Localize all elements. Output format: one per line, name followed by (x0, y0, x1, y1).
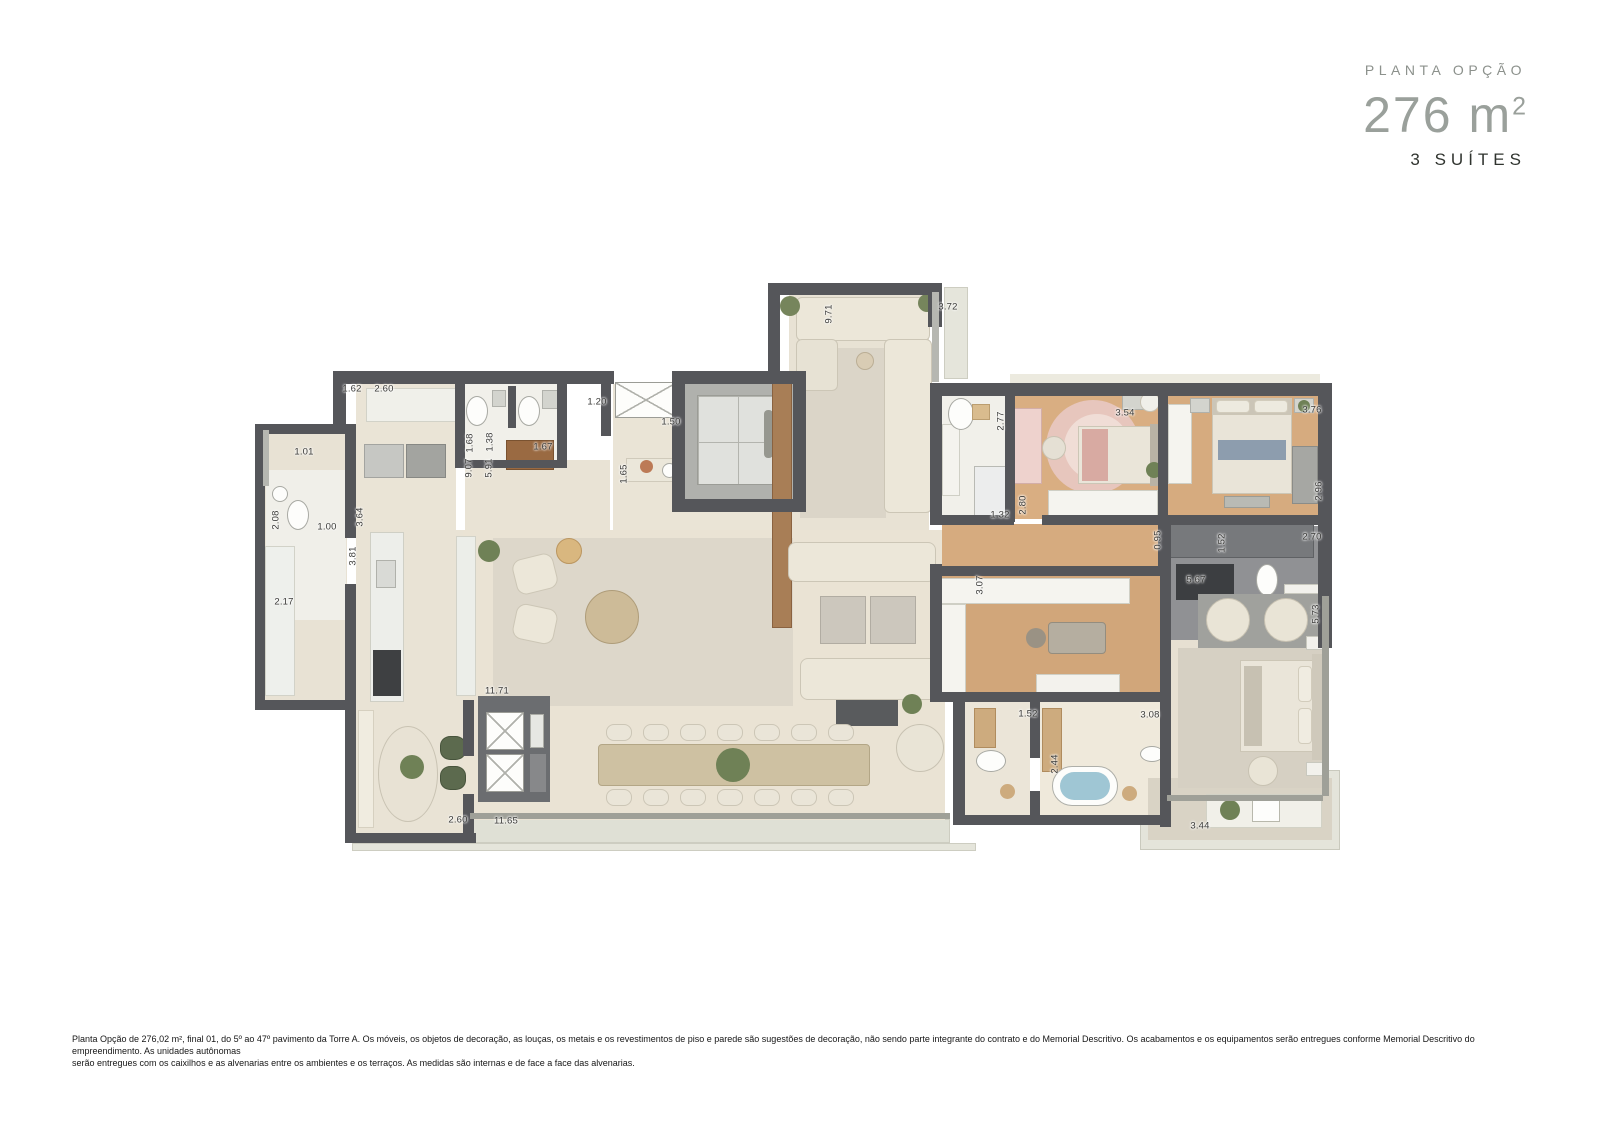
page: 1.622.601.012.081.003.643.812.171.681.38… (0, 0, 1600, 1125)
wall-segment (672, 371, 806, 384)
breakfast-plant (400, 755, 424, 779)
dining-chair-top (680, 724, 706, 741)
wc-his-toilet (976, 750, 1006, 772)
dressing-wardrobe (1170, 522, 1314, 558)
disclaimer-line-1: Planta Opção de 276,02 m², final 01, do … (72, 1034, 1475, 1056)
disclaimer: Planta Opção de 276,02 m², final 01, do … (72, 1033, 1544, 1069)
kitchen-sink (376, 560, 396, 588)
dining-chair-bottom (606, 789, 632, 806)
dining-chair-bottom (754, 789, 780, 806)
dimension-label: 3.64 (355, 507, 366, 526)
dining-chair-top (791, 724, 817, 741)
dimension-label: 2.70 (1302, 532, 1321, 543)
dining-chair-bottom (828, 789, 854, 806)
s3-pillow-1 (1216, 400, 1250, 413)
pouf (556, 538, 582, 564)
washer (406, 444, 446, 478)
dimension-label: 1.01 (294, 447, 313, 458)
wall-segment (345, 700, 356, 843)
dimension-label: 1.52 (1217, 533, 1228, 552)
wall-segment (463, 700, 474, 756)
dining-chair-top (643, 724, 669, 741)
dimension-label: 3.07 (975, 575, 986, 594)
wall-segment (345, 584, 356, 710)
dimension-label: 1.38 (485, 432, 496, 451)
breakfast-chair-2 (440, 766, 466, 790)
service-counter (265, 546, 295, 696)
island-box-1 (486, 712, 524, 750)
dressing-chair-2 (1264, 598, 1308, 642)
floor-corridor-suites (942, 524, 1160, 568)
service-sink (272, 486, 288, 502)
closet-wardrobe-left (940, 604, 966, 696)
plan-area: 276 m2 (1363, 90, 1526, 140)
wall-segment (1167, 795, 1323, 801)
wall-segment (455, 384, 465, 466)
dimension-label: 3.54 (1115, 408, 1134, 419)
dimension-label: 5.67 (1186, 575, 1205, 586)
dimension-label: 1.32 (990, 510, 1009, 521)
wall-segment (255, 700, 356, 710)
wall-segment (1042, 515, 1160, 525)
dining-chair-bottom (680, 789, 706, 806)
dimension-label: 11.71 (485, 686, 509, 697)
dimension-label: 1.20 (587, 397, 606, 408)
terrace-decor (1252, 800, 1280, 822)
closet-pouf (1026, 628, 1046, 648)
dimension-label: 11.65 (494, 816, 518, 827)
s3-bench (1224, 496, 1270, 508)
dryer (364, 444, 404, 478)
wc-toilet-1 (466, 396, 488, 426)
dimension-label: 1.65 (619, 464, 630, 483)
dining-chair-bottom (643, 789, 669, 806)
closet-wardrobe-top (940, 578, 1130, 604)
wall-segment (601, 384, 611, 436)
dimension-label: 9.07 (464, 458, 475, 477)
dimension-label: 3.76 (1302, 405, 1321, 416)
plan-suites: 3 SUÍTES (1363, 150, 1526, 170)
suite3-wardrobe (1168, 404, 1192, 484)
tv-console (836, 700, 898, 726)
dimension-label: 9.71 (824, 304, 835, 323)
plan-kicker: PLANTA OPÇÃO (1363, 62, 1526, 78)
dimension-label: 5.91 (484, 458, 495, 477)
wc-toilet-2 (518, 396, 540, 426)
disclaimer-line-2: serão entregues com os caixilhos e as al… (72, 1058, 635, 1068)
wall-segment (930, 564, 942, 702)
lounge-plant-1 (780, 296, 800, 316)
s1-vanity (942, 424, 960, 496)
wall-segment (1160, 515, 1171, 827)
area-superscript: 2 (1512, 92, 1526, 120)
dimension-label: 2.60 (448, 815, 467, 826)
master-chair (1248, 756, 1278, 786)
lounge-sofa-right (884, 339, 932, 513)
coffee-table (585, 590, 639, 644)
dimension-label: 2.77 (996, 411, 1007, 430)
dimension-label: 5.73 (1311, 604, 1322, 623)
s1-toilet (948, 398, 974, 430)
service-elevator (615, 382, 677, 418)
sofa-2 (788, 542, 936, 582)
dimension-label: 1.62 (342, 384, 361, 395)
dimension-label: 2.17 (274, 597, 293, 608)
living-plant (478, 540, 500, 562)
dimension-label: 2.44 (1050, 754, 1061, 773)
wc-sink-1 (492, 390, 506, 407)
terrace-plant (1220, 800, 1240, 820)
s2-desk (1014, 408, 1042, 484)
wall-segment (1160, 515, 1320, 525)
island-sink (530, 714, 544, 748)
island-box-2 (486, 754, 524, 792)
wall-segment (1030, 791, 1040, 819)
master-pillow-2 (1298, 708, 1312, 744)
s3-nightstand-1 (1190, 398, 1210, 413)
island-hatch (530, 754, 546, 792)
wall-segment (672, 499, 806, 512)
dressing-toilet (1256, 564, 1278, 596)
floor-plan: 1.622.601.012.081.003.643.812.171.681.38… (0, 0, 1600, 1125)
dining-chair-top (754, 724, 780, 741)
dining-chair-top (717, 724, 743, 741)
bathtub-water (1060, 772, 1110, 800)
wall-segment (793, 371, 806, 512)
dimension-label: 2.80 (1018, 495, 1029, 514)
wall-segment (953, 692, 965, 825)
wall-segment (930, 383, 1332, 396)
dimension-label: 1.67 (533, 442, 552, 453)
bath-stool (1122, 786, 1137, 801)
wc-his-cabinet (974, 708, 996, 748)
dimension-label: 3.08 (1140, 710, 1159, 721)
wall-segment (955, 815, 1169, 825)
dimension-label: 0.95 (1153, 530, 1164, 549)
wall-segment (672, 371, 685, 512)
master-runner (1244, 666, 1262, 746)
s1-sink (972, 404, 990, 420)
slab-south (352, 843, 976, 851)
dimension-label: 3.72 (938, 302, 957, 313)
s2-chair (1042, 436, 1066, 460)
dressing-chair-1 (1206, 598, 1250, 642)
wall-segment (263, 430, 269, 486)
dimension-label: 2.96 (1314, 481, 1325, 500)
dining-chair-bottom (791, 789, 817, 806)
wall-segment (333, 371, 614, 384)
s3-pillow-2 (1254, 400, 1288, 413)
wall-segment (942, 692, 1164, 702)
sofa-3 (800, 658, 940, 700)
closet-island (1048, 622, 1106, 654)
area-value: 276 m (1363, 87, 1512, 143)
terrace-south-band (470, 819, 950, 843)
dining-chair-top (828, 724, 854, 741)
dimension-label: 3.44 (1190, 821, 1209, 832)
wall-segment (1005, 392, 1015, 522)
wc-his-stool (1000, 784, 1015, 799)
dimension-label: 1.68 (465, 433, 476, 452)
wall-segment (930, 393, 942, 519)
wall-segment (508, 386, 516, 428)
dimension-label: 1.50 (661, 417, 680, 428)
wall-segment (768, 283, 780, 375)
sofa-table-2 (870, 596, 916, 644)
wall-segment (777, 283, 942, 295)
wall-segment (557, 384, 567, 466)
wc-sink-2 (542, 390, 558, 409)
s2-blanket (1082, 429, 1108, 481)
cooktop (373, 650, 401, 696)
s2-wardrobe (1048, 490, 1158, 516)
master-pillow-1 (1298, 666, 1312, 702)
dimension-label: 2.60 (374, 384, 393, 395)
round-chair (896, 724, 944, 772)
dimension-label: 1.52 (1018, 709, 1037, 720)
wall-segment (345, 833, 476, 843)
dining-chair-bottom (717, 789, 743, 806)
dressing-towel (1284, 584, 1322, 594)
dimension-label: 1.00 (317, 522, 336, 533)
console-plant (902, 694, 922, 714)
wall-segment (470, 813, 950, 819)
dimension-label: 2.08 (271, 510, 282, 529)
dining-chair-top (606, 724, 632, 741)
breakfast-bench (358, 710, 374, 828)
lavabo-flowers (640, 460, 653, 473)
lounge-sofa-top (796, 297, 930, 341)
dining-plant (716, 748, 750, 782)
service-toilet (287, 500, 309, 530)
wall-segment (1322, 596, 1329, 796)
s3-runner (1218, 440, 1286, 460)
title-block: PLANTA OPÇÃO 276 m2 3 SUÍTES (1363, 62, 1526, 170)
dimension-label: 3.81 (348, 546, 359, 565)
sofa-table-1 (820, 596, 866, 644)
lounge-side-table (856, 352, 874, 370)
living-console-strip (456, 536, 476, 696)
